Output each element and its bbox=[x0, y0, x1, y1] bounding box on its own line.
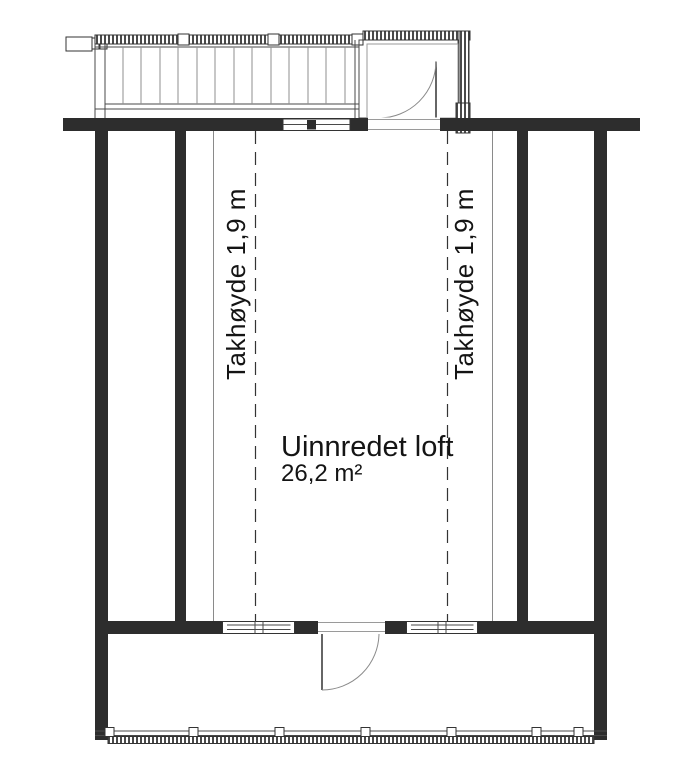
railing-post bbox=[532, 728, 541, 737]
room-name-label: Uinnredet loft bbox=[281, 431, 454, 463]
ceiling-height-label-left: Takhøyde 1,9 m bbox=[221, 188, 251, 380]
balcony-door-swing bbox=[379, 61, 436, 118]
window bbox=[283, 119, 350, 131]
porch-railing-top bbox=[363, 31, 470, 40]
balcony-railing bbox=[95, 35, 359, 44]
railing-post bbox=[189, 728, 198, 737]
knee-wall-right bbox=[517, 131, 528, 621]
loft-room: Takhøyde 1,9 m Takhøyde 1,9 m Uinnredet … bbox=[175, 131, 528, 621]
porch-railing-right bbox=[459, 31, 469, 105]
north-wall bbox=[63, 118, 640, 131]
room-area-label: 26,2 m² bbox=[281, 460, 362, 487]
east-wall bbox=[594, 118, 607, 740]
floor-plan: Takhøyde 1,9 m Takhøyde 1,9 m Uinnredet … bbox=[0, 0, 697, 765]
floor-plan-drawing: Takhøyde 1,9 m Takhøyde 1,9 m Uinnredet … bbox=[0, 0, 697, 765]
porch-enclosure bbox=[359, 40, 458, 118]
railing-post bbox=[105, 728, 114, 737]
railing-post bbox=[178, 34, 189, 45]
door-opening bbox=[368, 118, 440, 132]
ceiling-height-label-right: Takhøyde 1,9 m bbox=[449, 188, 479, 380]
balcony-railing bbox=[108, 737, 594, 744]
south-wall bbox=[95, 621, 607, 691]
railing-post bbox=[275, 728, 284, 737]
door-swing bbox=[322, 634, 379, 690]
window bbox=[223, 622, 295, 634]
exterior-walls bbox=[63, 118, 640, 740]
window bbox=[407, 622, 478, 634]
decking-lines bbox=[123, 47, 345, 104]
knee-wall-left bbox=[175, 131, 186, 621]
railing-post bbox=[574, 728, 583, 737]
balcony-step bbox=[66, 37, 92, 51]
railing-post bbox=[268, 34, 279, 45]
bottom-balcony bbox=[95, 728, 607, 744]
top-balcony bbox=[66, 34, 363, 118]
railing-post bbox=[447, 728, 456, 737]
railing-post bbox=[361, 728, 370, 737]
door-opening bbox=[318, 621, 385, 691]
west-wall bbox=[95, 118, 108, 740]
